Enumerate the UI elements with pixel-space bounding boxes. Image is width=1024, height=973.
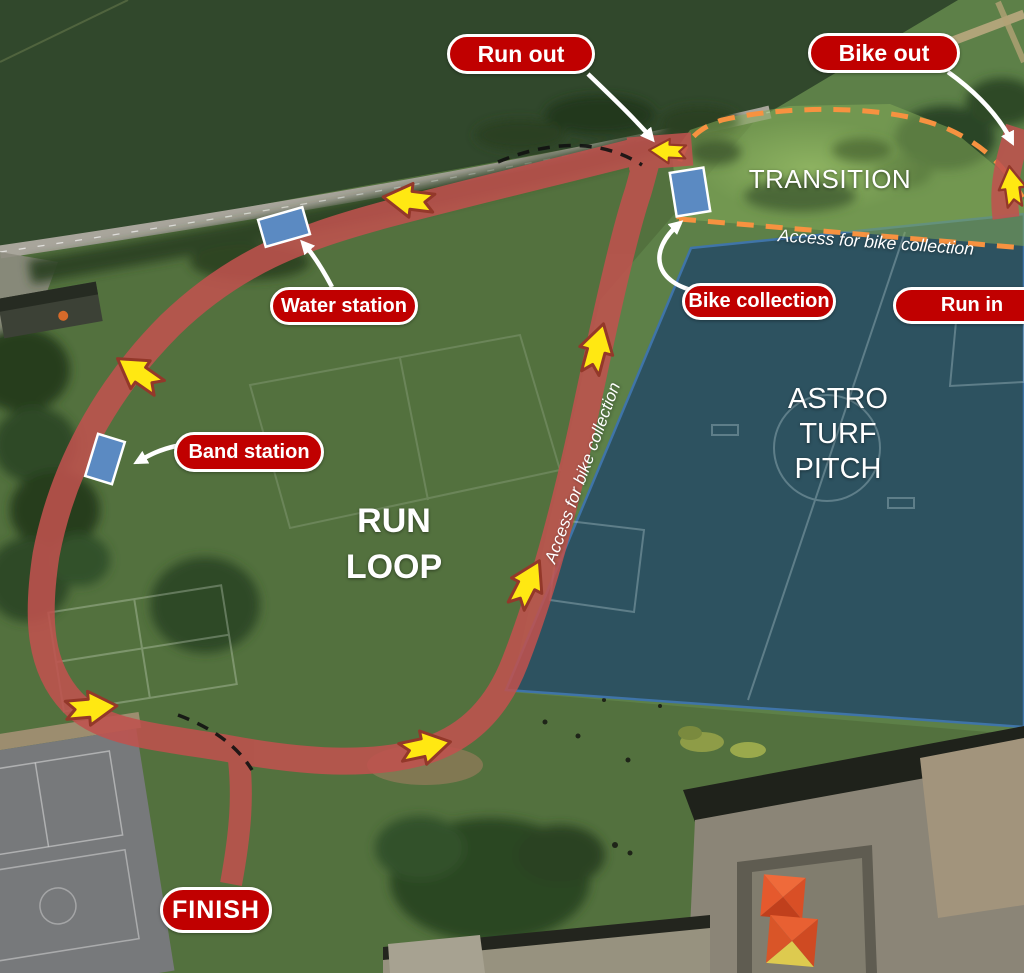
bike-collection-label: Bike collection [682, 283, 836, 320]
course-map: Run out Bike out Water station Band stat… [0, 0, 1024, 973]
water-station-label: Water station [270, 287, 418, 325]
astro-line3: PITCH [770, 452, 906, 487]
bike-out-label: Bike out [808, 33, 960, 73]
astro-turf-pitch-text: ASTRO TURF PITCH [770, 382, 906, 487]
run-loop-line1: RUN [319, 498, 469, 544]
finish-spur [231, 752, 241, 884]
run-loop-line2: LOOP [319, 544, 469, 590]
canopy-red-yellow [766, 915, 818, 967]
run-out-label: Run out [447, 34, 595, 74]
run-in-label: Run in [893, 287, 1024, 324]
transition-area-text: TRANSITION [745, 164, 915, 195]
astro-line1: ASTRO [770, 382, 906, 417]
band-station-label: Band station [174, 432, 324, 472]
right-building [920, 738, 1024, 918]
bike-collection-marker [670, 168, 710, 217]
finish-label: FINISH [160, 887, 272, 933]
astro-line2: TURF [770, 417, 906, 452]
canopy-red [760, 874, 806, 920]
run-loop-text: RUN LOOP [319, 498, 469, 590]
